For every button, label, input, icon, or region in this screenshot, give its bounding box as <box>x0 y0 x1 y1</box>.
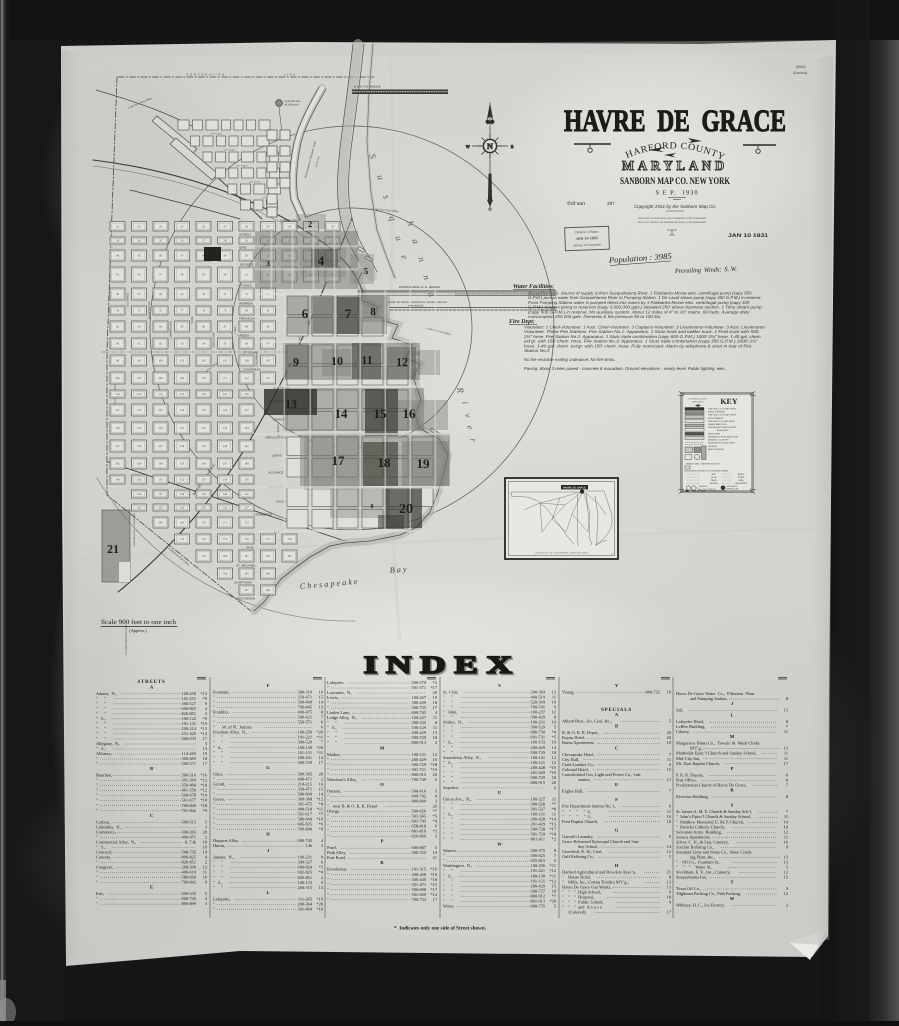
svg-text:6, 7 &: 6, 7 & <box>185 839 197 844</box>
svg-text:156: 156 <box>137 493 142 496</box>
svg-text:hose. 1-40 gal. chem. ext'gr.: hose. 1-40 gal. chem. ext'gr. with 150' … <box>524 343 752 348</box>
svg-text:21: 21 <box>433 855 437 860</box>
svg-text:19: 19 <box>417 456 431 471</box>
svg-text:*9: *9 <box>319 827 323 832</box>
svg-text:"STANDARD": "STANDARD" <box>716 429 729 432</box>
svg-text:188: 188 <box>266 589 271 592</box>
svg-text:BLUE: BLUE <box>711 476 717 479</box>
svg-text:Girard,: Girard, <box>213 781 225 786</box>
svg-text:COMMERCE: COMMERCE <box>254 513 273 517</box>
svg-text:OPENING WITH IRON DOOR: OPENING WITH IRON DOOR <box>708 426 737 429</box>
svg-text:HAVRE DE GRACE: HAVRE DE GRACE <box>563 486 587 489</box>
svg-text:Consolidated Gas, Light and Po: Consolidated Gas, Light and Power Co., S… <box>562 772 642 777</box>
svg-text:Revolution,: Revolution, <box>327 867 347 872</box>
svg-text:HAVRE DE GRACE: HAVRE DE GRACE <box>564 103 786 138</box>
svg-text:700-749: 700-749 <box>412 777 426 782</box>
svg-text:15: 15 <box>784 874 788 879</box>
svg-text:3: 3 <box>205 901 207 906</box>
svg-text:175: 175 <box>223 538 228 541</box>
svg-text:701-842: 701-842 <box>182 808 196 813</box>
svg-text:151: 151 <box>158 479 163 482</box>
svg-text:Lafayette,: Lafayette, <box>327 680 344 685</box>
svg-text:F: F <box>267 683 270 688</box>
svg-text:15: 15 <box>667 767 671 772</box>
svg-text:14: 14 <box>335 406 349 421</box>
svg-text:161: 161 <box>244 493 249 496</box>
svg-text:501-571: 501-571 <box>412 685 426 690</box>
svg-text:800-915: 800-915 <box>531 780 545 785</box>
svg-text:": " <box>327 834 329 839</box>
svg-text:*2: *2 <box>552 837 556 842</box>
svg-text:": " <box>96 880 98 885</box>
svg-text:120: 120 <box>244 393 249 396</box>
svg-text:700-842: 700-842 <box>182 880 196 885</box>
svg-text:S: S <box>498 683 501 688</box>
svg-text:LANCASTER: LANCASTER <box>213 332 216 348</box>
svg-text:9: 9 <box>205 880 207 885</box>
svg-text:Conesto,: Conesto, <box>96 854 111 859</box>
svg-text:P: P <box>381 839 384 844</box>
svg-text:and Pumping Station,: and Pumping Station, <box>690 696 728 701</box>
svg-text:700-733: 700-733 <box>412 897 426 902</box>
svg-text:BRICK: BRICK <box>738 473 745 476</box>
svg-text:Abbott Bros., Ice, Coal, &c.,: Abbott Bros., Ice, Coal, &c., <box>562 719 612 724</box>
svg-text:8: 8 <box>786 696 788 701</box>
svg-text:Riverton Building,: Riverton Building, <box>676 794 709 799</box>
svg-text:(Approx.): (Approx.) <box>129 628 147 633</box>
svg-text:100: 100 <box>158 360 163 363</box>
svg-text:165: 165 <box>201 507 206 510</box>
svg-text:S E P. 1930: S E P. 1930 <box>655 190 698 197</box>
svg-text:": " <box>96 761 98 766</box>
svg-text:G: G <box>266 765 270 770</box>
svg-text:*9: *9 <box>203 808 207 813</box>
svg-text:Margerson Binns Co., Towels: Margerson Binns Co., Towels & Wash Cloth… <box>676 741 760 746</box>
svg-text:HARFORD AGRICUL. & BREEDERS: HARFORD AGRICUL. & BREEDERS <box>133 512 136 546</box>
svg-text:123: 123 <box>158 409 163 412</box>
svg-text:8: 8 <box>786 794 788 799</box>
svg-text:©of san: ©of san <box>567 201 585 207</box>
svg-text:173: 173 <box>180 538 185 541</box>
svg-text:129: 129 <box>137 427 142 430</box>
svg-text:102: 102 <box>201 360 206 363</box>
svg-text:O: O <box>380 782 384 787</box>
svg-text:AUTOMATIC: AUTOMATIC <box>727 485 739 488</box>
svg-text:301-469: 301-469 <box>298 906 312 911</box>
svg-text:119: 119 <box>223 393 228 396</box>
svg-text:NOT NAMED: NOT NAMED <box>211 133 223 136</box>
svg-text:108: 108 <box>158 377 163 380</box>
svg-text:Lafayette,: Lafayette, <box>213 896 230 901</box>
svg-text:RESERVOIR: RESERVOIR <box>285 104 299 107</box>
svg-text:W: W <box>497 842 502 847</box>
svg-text:16: 16 <box>403 406 417 421</box>
svg-text:(8562): (8562) <box>796 65 806 69</box>
svg-text:158: 158 <box>180 493 185 496</box>
svg-text:CHOPTANK: CHOPTANK <box>234 581 251 585</box>
svg-text:146: 146 <box>201 463 206 466</box>
svg-text:G: G <box>615 828 619 833</box>
svg-text:": " <box>213 827 215 832</box>
svg-text:15: 15 <box>374 406 388 421</box>
svg-text:150: 150 <box>137 479 142 482</box>
svg-text:Susquehanna Inn,: Susquehanna Inn, <box>676 874 707 879</box>
svg-text:H: H <box>266 832 270 837</box>
svg-text:GREEN: GREEN <box>237 334 248 338</box>
svg-text:19: 19 <box>667 690 671 695</box>
svg-text:800-725: 800-725 <box>646 690 660 695</box>
svg-text:105: 105 <box>266 360 271 363</box>
svg-text:Congress,: Congress, <box>96 864 113 869</box>
svg-text:200-315: 200-315 <box>298 885 312 890</box>
svg-text:IRON DOOR: IRON DOOR <box>708 432 721 435</box>
svg-text:C O R P O R A T I O N: C O R P O R A T I O N <box>186 73 225 77</box>
svg-text:M: M <box>730 734 735 739</box>
svg-text:Eagles Hall,: Eagles Hall, <box>562 788 583 793</box>
svg-text:164: 164 <box>180 507 185 510</box>
svg-text:17: 17 <box>332 453 346 468</box>
svg-text:6: 6 <box>302 306 309 321</box>
svg-text:107: 107 <box>137 377 142 380</box>
svg-text:*18: *18 <box>316 906 323 911</box>
svg-text:B. & S. R.R. BRIDGE: B. & S. R.R. BRIDGE <box>354 85 381 89</box>
svg-text:Gulf Refining Co.,: Gulf Refining Co., <box>562 854 595 859</box>
svg-text:Morrison's Alley,: Morrison's Alley, <box>327 777 357 782</box>
svg-text:Station No.2.: Station No.2. <box>524 348 551 353</box>
svg-text:12: 12 <box>784 891 788 896</box>
svg-text:10: 10 <box>667 740 671 745</box>
svg-text:First Baptist Church,: First Baptist Church, <box>562 819 598 824</box>
svg-text:station,: station, <box>578 777 591 782</box>
svg-text:LOCATION OF H. DE G. AND PRINC: LOCATION OF H. DE G. AND PRINCIPAL CONNE… <box>535 552 589 555</box>
svg-text:110: 110 <box>202 377 207 380</box>
svg-text:ST. MICHAEL: ST. MICHAEL <box>236 564 256 568</box>
svg-text:Fountain,: Fountain, <box>213 690 230 695</box>
svg-text:S: S <box>731 803 734 808</box>
svg-text:163: 163 <box>158 507 163 510</box>
svg-text:11: 11 <box>361 353 372 367</box>
svg-text:137: 137 <box>158 445 163 448</box>
svg-text:101: 101 <box>180 360 185 363</box>
svg-text:122: 122 <box>137 409 142 412</box>
svg-text:FIRE WALL 6 IN. ABV ROOF: FIRE WALL 6 IN. ABV ROOF <box>708 420 736 423</box>
svg-text:SUPERIOR: SUPERIOR <box>280 219 297 223</box>
svg-text:13: 13 <box>319 885 323 890</box>
svg-text:172: 172 <box>244 522 249 525</box>
svg-text:186: 186 <box>266 573 271 576</box>
svg-text:Library,: Library, <box>676 729 690 734</box>
svg-text:5: 5 <box>669 719 671 724</box>
svg-text:160: 160 <box>223 493 228 496</box>
svg-text:131: 131 <box>180 427 185 430</box>
svg-text:700-840: 700-840 <box>298 827 312 832</box>
svg-text:12: 12 <box>396 355 408 369</box>
svg-text:128: 128 <box>115 427 120 430</box>
svg-text:2 &: 2 & <box>305 843 312 848</box>
svg-text:171: 171 <box>223 522 228 525</box>
svg-text:No fire resistive roofing ordi: No fire resistive roofing ordinance. No … <box>524 357 615 362</box>
svg-text:177: 177 <box>266 538 271 541</box>
svg-text:WITH CORNICE: WITH CORNICE <box>708 417 724 420</box>
svg-text:Burns Apartments,: Burns Apartments, <box>562 740 595 745</box>
svg-text:METAL CORNICE: METAL CORNICE <box>708 411 725 414</box>
svg-text:800-899: 800-899 <box>412 798 426 803</box>
svg-text:Ontario,: Ontario, <box>327 788 341 793</box>
svg-text:GRAY: GRAY <box>711 479 717 482</box>
svg-text:184: 184 <box>223 573 228 576</box>
svg-text:600-735: 600-735 <box>531 903 545 908</box>
svg-text:C: C <box>615 745 618 750</box>
svg-text:140: 140 <box>223 445 228 448</box>
svg-text:154: 154 <box>223 479 228 482</box>
svg-text:WINDOW 1st STORY: WINDOW 1st STORY <box>708 439 729 442</box>
svg-text:9: 9 <box>786 844 788 849</box>
svg-text:(Districts): (Districts) <box>793 71 807 75</box>
svg-text:Post Road,: Post Road, <box>327 855 346 860</box>
svg-text:4: 4 <box>318 253 325 268</box>
svg-text:500-725: 500-725 <box>412 850 426 855</box>
svg-text:FRAME PARTITION: FRAME PARTITION <box>708 423 727 426</box>
svg-text:800-899: 800-899 <box>182 901 196 906</box>
svg-text:180: 180 <box>223 555 228 558</box>
svg-text:170: 170 <box>201 522 206 525</box>
svg-text:L: L <box>266 890 269 895</box>
svg-text:Commerce,: Commerce, <box>96 829 116 834</box>
svg-text:Whitney, H. C., Ice Factory,: Whitney, H. C., Ice Factory, <box>676 903 725 908</box>
svg-text:182: 182 <box>266 555 271 558</box>
svg-text:148: 148 <box>244 463 249 466</box>
svg-text:178: 178 <box>287 538 292 541</box>
svg-text:MARYLAND: MARYLAND <box>622 158 728 173</box>
svg-text:3: 3 <box>266 259 270 268</box>
svg-text:152: 152 <box>180 479 185 482</box>
svg-text:7: 7 <box>345 306 352 321</box>
svg-text:Division of Maps: Division of Maps <box>575 230 599 235</box>
svg-text:106: 106 <box>115 377 120 380</box>
svg-text:and in our Service, but absolu: and in our Service, but absolute accurac… <box>637 221 706 224</box>
svg-text:OHIO: OHIO <box>234 327 237 334</box>
svg-text:Warren,: Warren, <box>443 848 457 853</box>
svg-text:144: 144 <box>158 463 163 466</box>
svg-text:5: 5 <box>364 266 369 276</box>
svg-text:ALLIANCE: ALLIANCE <box>268 471 284 475</box>
svg-text:RED: RED <box>712 473 717 476</box>
svg-text:185: 185 <box>244 573 249 576</box>
svg-text:B: B <box>615 724 618 729</box>
svg-text:136: 136 <box>137 445 142 448</box>
svg-text:166: 166 <box>223 507 228 510</box>
svg-text:2: 2 <box>435 740 437 745</box>
svg-text:3: 3 <box>321 843 323 848</box>
svg-text:AS SHOWN ON KEY MAP: AS SHOWN ON KEY MAP <box>707 490 728 493</box>
svg-text:179: 179 <box>201 555 206 558</box>
svg-text:WYE: WYE <box>246 546 253 550</box>
svg-text:143: 143 <box>137 463 142 466</box>
svg-text:ONTARIO: ONTARIO <box>240 263 255 267</box>
svg-text:L I N E: L I N E <box>284 73 296 77</box>
svg-text:103: 103 <box>223 360 228 363</box>
svg-text:167: 167 <box>244 507 249 510</box>
svg-text:149: 149 <box>115 479 120 482</box>
svg-text:5: 5 <box>554 903 556 908</box>
svg-text:Bourbon,: Bourbon, <box>96 773 112 778</box>
svg-text:109: 109 <box>180 377 185 380</box>
svg-text:Alliance,: Alliance, <box>96 751 112 756</box>
svg-text:P: P <box>731 766 734 771</box>
svg-text:125: 125 <box>201 409 206 412</box>
svg-text:155: 155 <box>244 479 249 482</box>
svg-text:174: 174 <box>201 538 206 541</box>
svg-text:NOT NAMED: NOT NAMED <box>249 181 261 184</box>
svg-text:142: 142 <box>115 463 120 466</box>
svg-text:112: 112 <box>245 377 250 380</box>
svg-text:181: 181 <box>244 555 249 558</box>
svg-text:BUILDINGS COLORED YELLOW ARE F: BUILDINGS COLORED YELLOW ARE FRAME <box>685 470 729 473</box>
svg-text:Huron,: Huron, <box>213 843 225 848</box>
svg-text:SANBORN MAP CO. NEW YORK: SANBORN MAP CO. NEW YORK <box>620 176 730 187</box>
svg-text:18: 18 <box>378 455 392 470</box>
svg-text:HARFORD COUNTY: HARFORD COUNTY <box>689 398 709 401</box>
svg-text:Jail,: Jail, <box>676 708 683 713</box>
svg-text:145: 145 <box>180 463 185 466</box>
svg-text:E: E <box>615 782 618 787</box>
svg-text:": " <box>96 901 98 906</box>
svg-text:WINDOWS 1st & 2nd STORY: WINDOWS 1st & 2nd STORY <box>708 442 736 445</box>
svg-text:LYCOMING: LYCOMING <box>127 293 130 307</box>
svg-text:500-515: 500-515 <box>182 819 196 824</box>
svg-text:3: 3 <box>435 834 437 839</box>
svg-text:8: 8 <box>371 504 374 510</box>
svg-text:111: 111 <box>223 377 227 380</box>
svg-text:W: W <box>466 145 470 150</box>
svg-text:500-633: 500-633 <box>182 736 196 741</box>
svg-text:CONGRESS: CONGRESS <box>243 368 261 372</box>
svg-text:FRANKLIN: FRANKLIN <box>239 317 255 321</box>
svg-text:169: 169 <box>180 522 185 525</box>
svg-text:10: 10 <box>667 819 671 824</box>
svg-text:CUMBERLAND: CUMBERLAND <box>170 321 173 339</box>
svg-text:500-571: 500-571 <box>182 761 196 766</box>
svg-text:8: 8 <box>370 306 376 318</box>
svg-text:T: T <box>730 880 733 885</box>
svg-text:13: 13 <box>667 777 671 782</box>
svg-text:2: 2 <box>308 219 313 229</box>
svg-text:820-899: 820-899 <box>412 834 426 839</box>
svg-text:Mt. Zion Baptist Church,: Mt. Zion Baptist Church, <box>676 761 720 766</box>
svg-text:Superior,: Superior, <box>443 785 459 790</box>
svg-text:FIRE WALL 12 IN. ABV ROOF: FIRE WALL 12 IN. ABV ROOF <box>708 414 737 417</box>
svg-text:133: 133 <box>223 427 228 430</box>
svg-text:B: B <box>150 766 153 771</box>
svg-text:SPRINKLERS: SPRINKLERS <box>727 488 740 491</box>
svg-text:13: 13 <box>285 397 297 411</box>
svg-text:LEWIS: LEWIS <box>272 454 282 458</box>
svg-text:Scale 900 feet to one inch: Scale 900 feet to one inch <box>101 619 177 626</box>
svg-text:159: 159 <box>201 493 206 496</box>
svg-text:E: E <box>150 885 153 890</box>
svg-text:YORK: YORK <box>191 316 194 324</box>
svg-text:Presbyterian Church of Havre D: Presbyterian Church of Havre De Grace, <box>676 782 747 787</box>
svg-text:POCOMOKE: POCOMOKE <box>237 597 256 601</box>
svg-text:Water,: Water, <box>443 903 454 908</box>
svg-text:2nd & 5th: 2nd & 5th <box>708 445 718 448</box>
svg-text:168: 168 <box>158 522 163 525</box>
svg-text:9: 9 <box>293 355 299 369</box>
svg-text:139: 139 <box>201 445 206 448</box>
svg-text:Copyright 1931 by the Sanborn: Copyright 1931 by the Sanborn Map Co. <box>634 204 716 209</box>
svg-text:OTSEGO: OTSEGO <box>238 284 252 288</box>
svg-text:FIRE-PROOF: FIRE-PROOF <box>735 482 749 485</box>
svg-text:115: 115 <box>137 393 142 396</box>
svg-text:": " <box>213 906 215 911</box>
svg-text:117: 117 <box>180 393 185 396</box>
svg-text:2: 2 <box>554 785 556 790</box>
svg-text:HURON: HURON <box>239 233 251 237</box>
svg-text:INDICATE: INDICATE <box>699 485 708 488</box>
svg-text:MARYLAND: MARYLAND <box>692 400 704 403</box>
svg-text:124: 124 <box>180 409 185 412</box>
svg-text:M: M <box>380 745 385 750</box>
svg-text:FIRE WALL 12 IN. ABV ROOF: FIRE WALL 12 IN. ABV ROOF <box>708 407 737 410</box>
svg-text:127: 127 <box>244 409 249 412</box>
svg-text:121: 121 <box>115 409 120 412</box>
svg-text:Young,: Young, <box>562 690 574 695</box>
svg-text:" ": " " <box>213 885 223 890</box>
svg-text:Franklin,: Franklin, <box>213 710 229 715</box>
svg-text:BROWN: BROWN <box>710 482 718 485</box>
svg-text:SINGLE DBD CONCRETE BLOCK: SINGLE DBD CONCRETE BLOCK <box>686 463 720 466</box>
svg-text:C: C <box>150 813 153 818</box>
svg-text:N: N <box>487 142 494 151</box>
svg-text:5: 5 <box>669 854 671 859</box>
svg-text:118: 118 <box>202 393 207 396</box>
svg-text:116: 116 <box>159 393 164 396</box>
svg-text:WARREN: WARREN <box>239 302 253 306</box>
svg-text:800-913: 800-913 <box>412 740 426 745</box>
svg-text:": " <box>96 808 98 813</box>
svg-text:WINDOWS & IRON SHUTTERS: WINDOWS & IRON SHUTTERS <box>708 436 739 439</box>
svg-text:141: 141 <box>244 445 249 448</box>
svg-text:138: 138 <box>180 445 185 448</box>
svg-text:500-729: 500-729 <box>298 760 312 765</box>
svg-text:STONE: STONE <box>737 476 745 479</box>
svg-text:consumption 250,000 gals. Dome: consumption 250,000 gals. Domestic & fir… <box>528 314 661 319</box>
svg-text:130: 130 <box>158 427 163 430</box>
svg-text:B a y: B a y <box>389 565 407 575</box>
svg-text:9: 9 <box>669 900 671 905</box>
svg-text:ERIE: ERIE <box>239 246 247 250</box>
svg-text:104: 104 <box>244 360 249 363</box>
svg-text:W: W <box>730 896 735 901</box>
svg-text:134: 134 <box>244 427 249 430</box>
svg-text:PENNSYLVANIA R. R. BRIDGE: PENNSYLVANIA R. R. BRIDGE <box>399 285 440 289</box>
svg-text:JAN 14 1931: JAN 14 1931 <box>576 236 599 241</box>
svg-text:162: 162 <box>137 507 142 510</box>
svg-text:COLUMBIA: COLUMBIA <box>256 353 259 367</box>
svg-text:JAN 10 1931: JAN 10 1931 <box>728 233 768 239</box>
svg-text:126: 126 <box>223 409 228 412</box>
svg-text:F: F <box>615 797 618 802</box>
svg-text:157: 157 <box>158 493 163 496</box>
svg-text:Paving: About 3 miles paved -: Paving: About 3 miles paved - concrete &… <box>524 366 726 371</box>
svg-text:135: 135 <box>115 445 120 448</box>
svg-text:183: 183 <box>287 555 292 558</box>
svg-text:113: 113 <box>266 377 271 380</box>
svg-text:132: 132 <box>201 427 206 430</box>
svg-text:REVOLUTION: REVOLUTION <box>266 436 287 440</box>
svg-text:114: 114 <box>116 393 121 396</box>
svg-text:2: 2 <box>786 903 788 908</box>
